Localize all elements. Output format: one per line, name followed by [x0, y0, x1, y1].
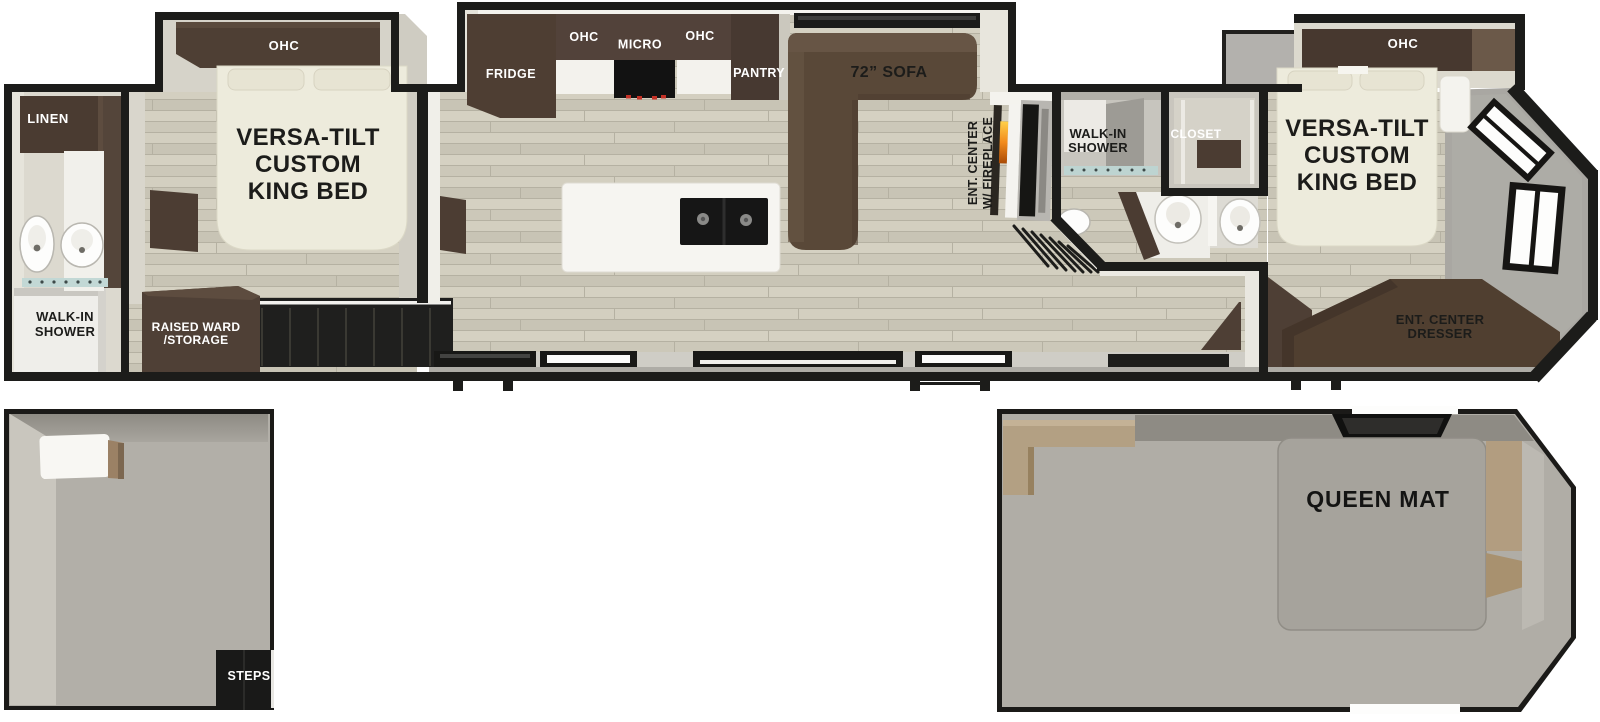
- svg-text:QUEEN MAT: QUEEN MAT: [1306, 486, 1450, 512]
- svg-text:/STORAGE: /STORAGE: [164, 333, 229, 347]
- svg-text:OHC: OHC: [685, 29, 714, 43]
- svg-text:PANTRY: PANTRY: [733, 66, 785, 80]
- svg-text:CLOSET: CLOSET: [1170, 127, 1221, 141]
- svg-text:DRESSER: DRESSER: [1408, 326, 1473, 341]
- svg-text:SHOWER: SHOWER: [1068, 140, 1128, 155]
- svg-text:72” SOFA: 72” SOFA: [850, 64, 927, 81]
- svg-text:LINEN: LINEN: [27, 111, 69, 126]
- svg-text:STEPS: STEPS: [228, 669, 271, 683]
- svg-text:FRIDGE: FRIDGE: [486, 67, 536, 81]
- svg-text:OHC: OHC: [1388, 36, 1419, 51]
- svg-text:SHOWER: SHOWER: [35, 324, 96, 339]
- svg-text:RAISED WARD: RAISED WARD: [152, 320, 241, 334]
- svg-text:OHC: OHC: [569, 30, 598, 44]
- svg-text:CUSTOM: CUSTOM: [255, 151, 361, 178]
- svg-text:WALK-IN: WALK-IN: [1070, 126, 1127, 141]
- svg-text:ENT. CENTER: ENT. CENTER: [1396, 312, 1485, 327]
- svg-text:OHC: OHC: [269, 38, 300, 53]
- svg-text:VERSA-TILT: VERSA-TILT: [236, 124, 380, 151]
- svg-text:CUSTOM: CUSTOM: [1304, 142, 1410, 169]
- svg-text:W/ FIREPLACE: W/ FIREPLACE: [981, 117, 995, 209]
- svg-text:WALK-IN: WALK-IN: [36, 309, 94, 324]
- svg-text:KING BED: KING BED: [248, 178, 369, 205]
- svg-text:VERSA-TILT: VERSA-TILT: [1285, 115, 1429, 142]
- svg-text:ENT. CENTER: ENT. CENTER: [966, 121, 980, 205]
- svg-text:MICRO: MICRO: [618, 38, 662, 52]
- svg-text:KING BED: KING BED: [1297, 169, 1418, 196]
